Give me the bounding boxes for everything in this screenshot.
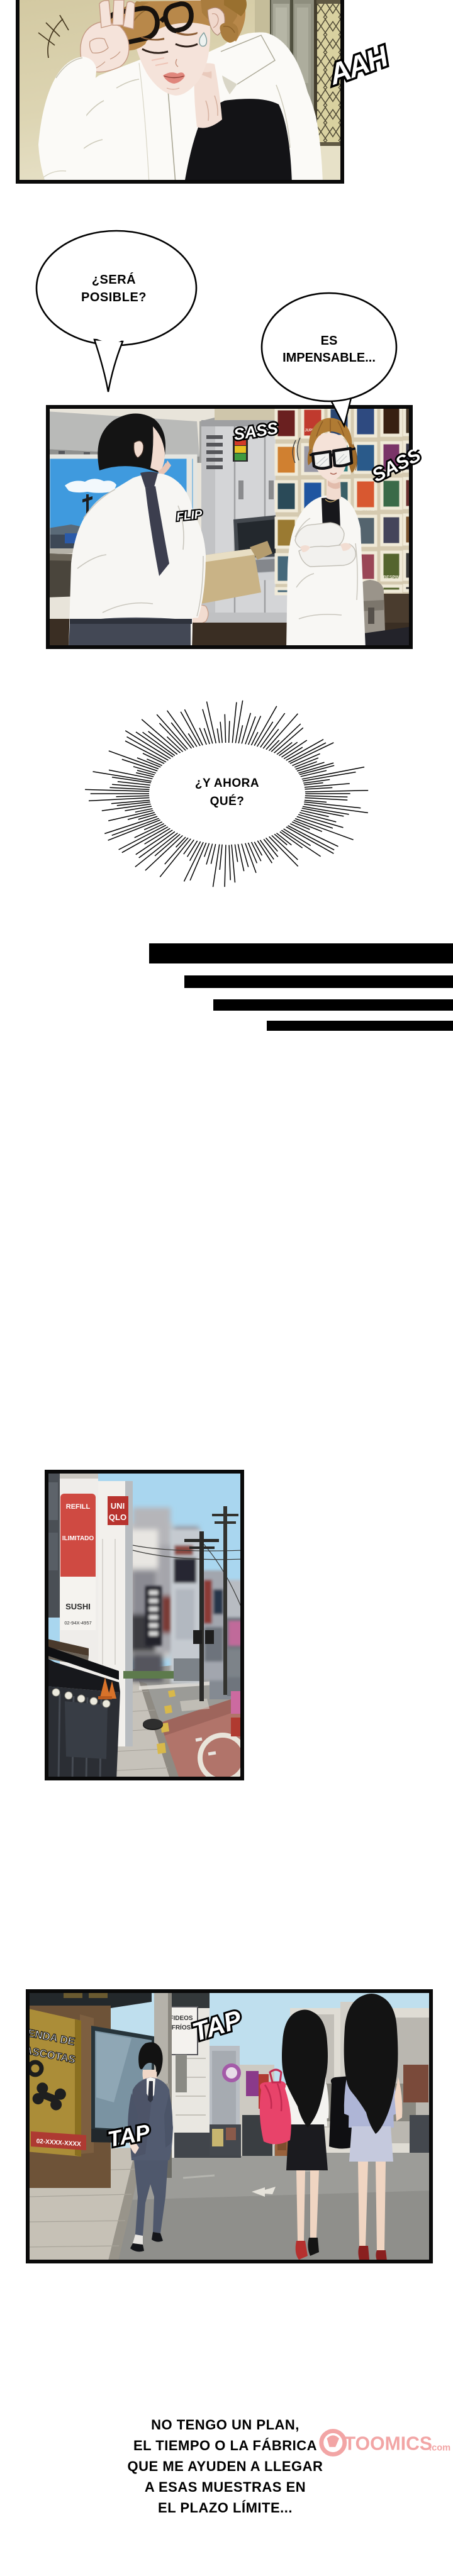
svg-text:.com: .com	[429, 2443, 450, 2453]
svg-text:SUSHI: SUSHI	[65, 1602, 91, 1611]
svg-text:FLIP: FLIP	[176, 508, 203, 524]
svg-text:FIDEOS: FIDEOS	[169, 2015, 193, 2022]
svg-text:FRÍOS: FRÍOS	[172, 2023, 191, 2031]
svg-text:02-94X-4957: 02-94X-4957	[64, 1620, 91, 1626]
svg-text:UNI: UNI	[111, 1501, 125, 1511]
svg-text:TAP: TAP	[191, 2006, 245, 2047]
svg-text:REFILL: REFILL	[66, 1503, 91, 1511]
svg-text:NEPTUNE: NEPTUNE	[357, 508, 375, 512]
svg-text:SASS: SASS	[232, 418, 279, 444]
svg-text:TOOMICS: TOOMICS	[344, 2434, 432, 2455]
svg-text:SASS: SASS	[371, 450, 424, 486]
svg-text:ILIMITADO: ILIMITADO	[62, 1535, 94, 1542]
svg-text:TAP: TAP	[106, 2120, 152, 2152]
svg-text:BESPIN: BESPIN	[383, 575, 400, 580]
svg-text:QLO: QLO	[109, 1513, 126, 1522]
svg-text:AAH: AAH	[327, 40, 393, 91]
